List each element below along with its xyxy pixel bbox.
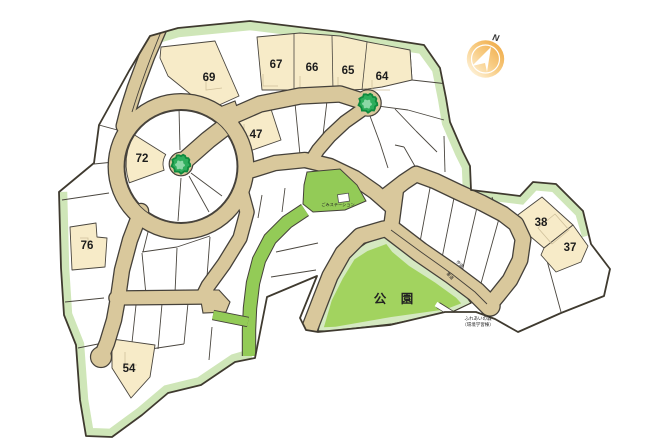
svg-text:67: 67 xyxy=(270,59,283,71)
svg-text:65: 65 xyxy=(342,65,355,77)
svg-text:76: 76 xyxy=(81,240,94,252)
svg-text:54: 54 xyxy=(123,363,136,375)
svg-text:37: 37 xyxy=(564,242,577,254)
svg-text:64: 64 xyxy=(376,71,389,83)
svg-text:72: 72 xyxy=(136,153,149,165)
svg-text:公: 公 xyxy=(374,292,387,306)
svg-text:ごみステーション: ごみステーション xyxy=(321,201,354,208)
svg-text:47: 47 xyxy=(250,129,263,141)
svg-text:（環境学習棟）: （環境学習棟） xyxy=(462,321,494,328)
svg-text:38: 38 xyxy=(535,217,548,229)
svg-text:66: 66 xyxy=(306,62,319,74)
svg-text:園: 園 xyxy=(401,292,414,306)
svg-text:ふれあいの森: ふれあいの森 xyxy=(465,315,492,322)
svg-text:69: 69 xyxy=(203,72,216,84)
